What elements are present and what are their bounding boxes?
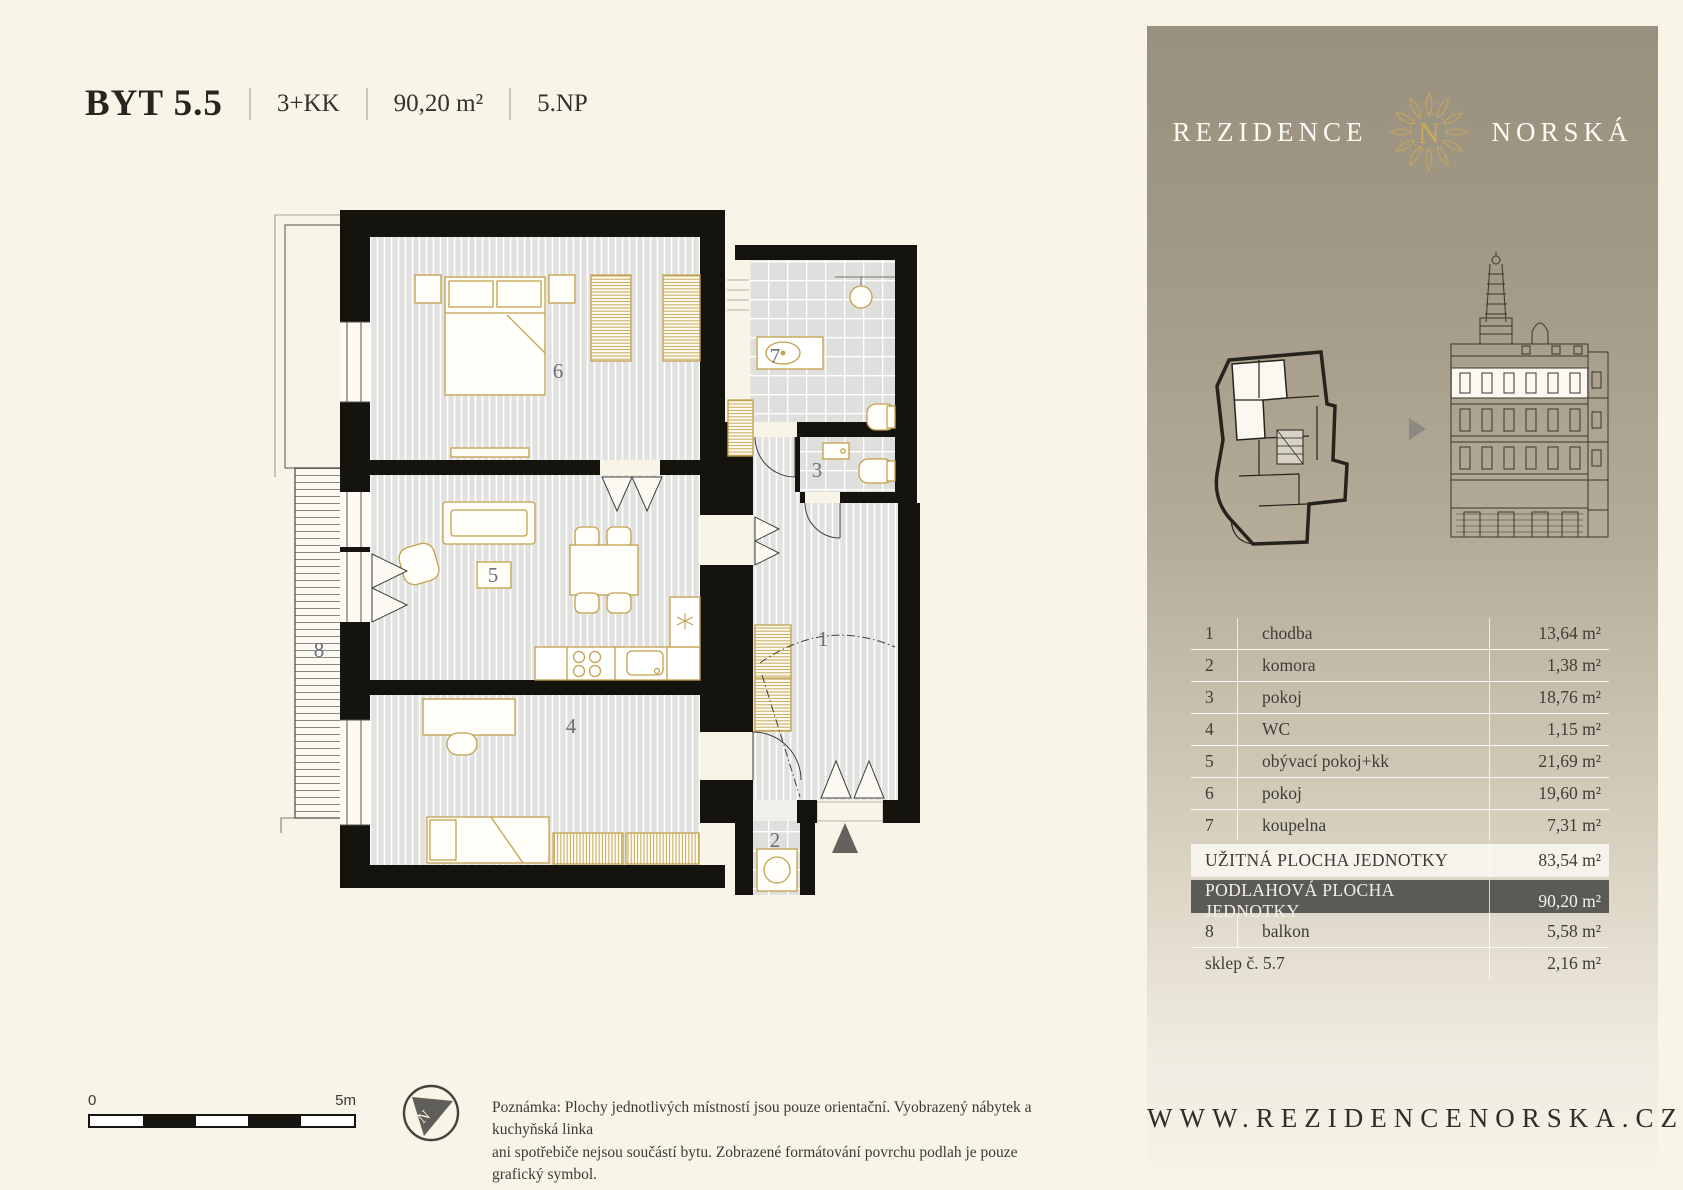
brand-logo: REZIDENCE N NORSKÁ (1147, 88, 1658, 176)
summary-label: UŽITNÁ PLOCHA JEDNOTKY (1191, 850, 1489, 871)
table-row: 7 koupelna 7,31 m² (1191, 810, 1609, 841)
cellar-area: 2,16 m² (1489, 948, 1609, 979)
header-separator (249, 88, 251, 120)
room-area: 1,38 m² (1489, 650, 1609, 681)
room-area: 1,15 m² (1489, 714, 1609, 745)
floor-number: 5.NP (537, 90, 588, 118)
room-label: obývací pokoj+kk (1237, 746, 1489, 777)
label-wc-room: 3 (812, 458, 823, 482)
label-balcony: 8 (314, 638, 325, 662)
brand-name-left: REZIDENCE (1172, 117, 1367, 148)
room-number: 1 (1191, 623, 1237, 644)
room-area: 5,58 m² (1489, 916, 1609, 947)
label-living: 5 (488, 563, 499, 587)
room-label: chodba (1237, 618, 1489, 649)
table-row: 5 obývací pokoj+kk 21,69 m² (1191, 746, 1609, 778)
label-bathroom: 7 (770, 344, 781, 368)
cellar-label: sklep č. 5.7 (1191, 953, 1489, 974)
room-number: 4 (1191, 719, 1237, 740)
room-label: balkon (1237, 916, 1489, 947)
room-number: 8 (1191, 921, 1237, 942)
room-area: 18,76 m² (1489, 682, 1609, 713)
label-room4: 4 (566, 714, 577, 738)
total-area: 90,20 m² (394, 90, 483, 118)
summary-useful-area: UŽITNÁ PLOCHA JEDNOTKY 83,54 m² (1191, 844, 1609, 877)
building-elevation (1436, 252, 1611, 547)
brand-name-right: NORSKÁ (1491, 117, 1632, 148)
room-label: pokoj (1237, 682, 1489, 713)
entry-marker-icon (832, 823, 858, 853)
brand-mandala-icon: N (1385, 88, 1473, 176)
room-label: WC (1237, 714, 1489, 745)
disclaimer-note: Poznámka: Plochy jednotlivých místností … (492, 1097, 1067, 1187)
unit-title: BYT 5.5 (85, 82, 223, 125)
room-label: koupelna (1237, 810, 1489, 841)
header-separator (366, 88, 368, 120)
scale-start: 0 (88, 1092, 96, 1109)
label-bedroom: 6 (553, 359, 564, 383)
table-row: 3 pokoj 18,76 m² (1191, 682, 1609, 714)
floor-pointer-icon (1409, 418, 1426, 440)
room-area: 21,69 m² (1489, 746, 1609, 777)
table-row: 4 WC 1,15 m² (1191, 714, 1609, 746)
compass-icon: N (400, 1082, 462, 1144)
label-komora: 2 (770, 828, 781, 852)
room-label: pokoj (1237, 778, 1489, 809)
summary-value: 83,54 m² (1489, 844, 1609, 877)
label-hallway: 1 (818, 627, 829, 651)
floor-key-plan (1199, 346, 1359, 551)
scale-bar-segments (88, 1114, 356, 1128)
brochure-page: BYT 5.5 3+KK 90,20 m² 5.NP (0, 0, 1683, 1190)
table-row-balcony: 8 balkon 5,58 m² (1191, 916, 1609, 948)
scale-end: 5m (335, 1092, 356, 1109)
room-label: komora (1237, 650, 1489, 681)
table-row: 6 pokoj 19,60 m² (1191, 778, 1609, 810)
note-line-2: ani spotřebiče nejsou součástí bytu. Zob… (492, 1142, 1067, 1187)
sidebar: REZIDENCE N NORSKÁ (1147, 26, 1658, 1166)
website-url[interactable]: WWW.REZIDENCENORSKA.CZ (1147, 1103, 1658, 1134)
header-separator (509, 88, 511, 120)
note-line-1: Poznámka: Plochy jednotlivých místností … (492, 1097, 1067, 1142)
room-number: 5 (1191, 751, 1237, 772)
room-number: 3 (1191, 687, 1237, 708)
room-number: 2 (1191, 655, 1237, 676)
scale-bar: 0 5m (88, 1092, 356, 1128)
room-area: 13,64 m² (1489, 618, 1609, 649)
room-area: 7,31 m² (1489, 810, 1609, 841)
room-number: 7 (1191, 815, 1237, 836)
table-row: 2 komora 1,38 m² (1191, 650, 1609, 682)
table-row: 1 chodba 13,64 m² (1191, 618, 1609, 650)
floor-plan: 1 2 3 4 5 6 7 8 (255, 185, 955, 895)
table-row-cellar: sklep č. 5.7 2,16 m² (1191, 948, 1609, 979)
summary-floor-area: PODLAHOVÁ PLOCHA JEDNOTKY 90,20 m² (1191, 880, 1609, 913)
brand-monogram: N (1419, 118, 1440, 150)
header: BYT 5.5 3+KK 90,20 m² 5.NP (85, 82, 588, 125)
room-number: 6 (1191, 783, 1237, 804)
disposition: 3+KK (277, 90, 340, 118)
room-table: 1 chodba 13,64 m² 2 komora 1,38 m² 3 pok… (1191, 618, 1609, 979)
room-area: 19,60 m² (1489, 778, 1609, 809)
